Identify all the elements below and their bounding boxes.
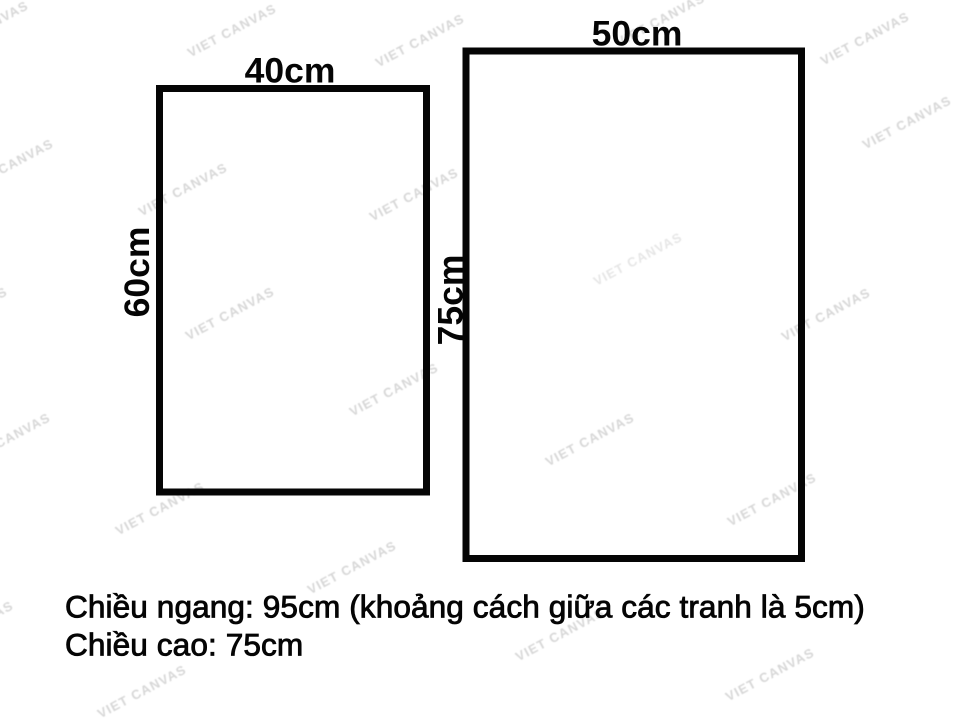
svg-text:VIET CANVAS: VIET CANVAS xyxy=(779,285,873,345)
svg-text:VIET CANVAS: VIET CANVAS xyxy=(0,136,56,196)
svg-text:VIET CANVAS: VIET CANVAS xyxy=(136,160,230,220)
svg-text:VIET CANVAS: VIET CANVAS xyxy=(0,0,31,57)
svg-text:VIET CANVAS: VIET CANVAS xyxy=(0,598,16,658)
svg-text:VIET CANVAS: VIET CANVAS xyxy=(367,165,461,225)
svg-text:VIET CANVAS: VIET CANVAS xyxy=(860,93,954,153)
svg-text:Chiều ngang: 95cm (khoảng cách: Chiều ngang: 95cm (khoảng cách giữa các … xyxy=(65,589,865,625)
svg-text:VIET CANVAS: VIET CANVAS xyxy=(95,662,189,719)
svg-text:VIET CANVAS: VIET CANVAS xyxy=(183,284,277,344)
svg-text:VIET CANVAS: VIET CANVAS xyxy=(0,284,10,344)
svg-text:50cm: 50cm xyxy=(592,14,683,54)
svg-text:VIET CANVAS: VIET CANVAS xyxy=(373,11,467,71)
svg-text:VIET CANVAS: VIET CANVAS xyxy=(723,645,817,705)
svg-text:Chiều cao: 75cm: Chiều cao: 75cm xyxy=(65,627,303,663)
svg-text:VIET CANVAS: VIET CANVAS xyxy=(543,410,637,470)
svg-text:VIET CANVAS: VIET CANVAS xyxy=(0,410,53,470)
svg-text:VIET CANVAS: VIET CANVAS xyxy=(818,9,912,69)
svg-text:40cm: 40cm xyxy=(245,50,336,90)
svg-text:75cm: 75cm xyxy=(431,255,471,346)
svg-text:VIET CANVAS: VIET CANVAS xyxy=(591,229,685,289)
svg-text:60cm: 60cm xyxy=(117,227,157,318)
